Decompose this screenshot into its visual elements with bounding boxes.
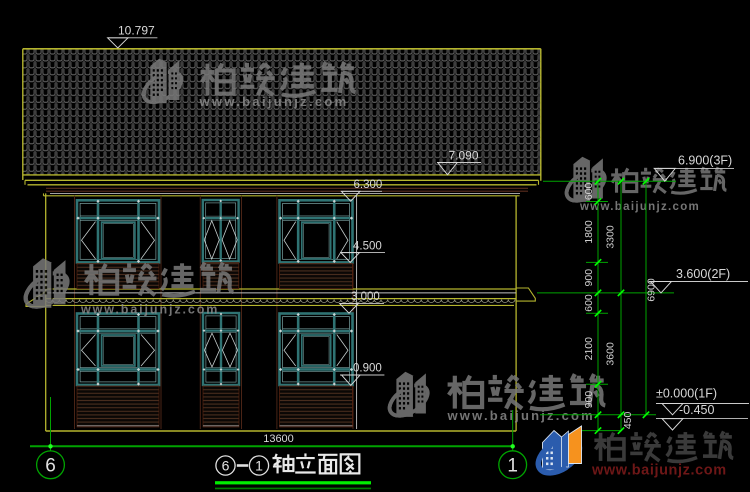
svg-text:3.000: 3.000 <box>351 291 380 303</box>
svg-text:www.baijunjz.com: www.baijunjz.com <box>447 408 595 423</box>
svg-text:6: 6 <box>45 456 56 477</box>
svg-text:3600: 3600 <box>605 342 617 366</box>
svg-text:±0.000(1F): ±0.000(1F) <box>656 387 717 401</box>
svg-text:4.500: 4.500 <box>353 240 382 252</box>
svg-text:1: 1 <box>255 458 263 474</box>
svg-text:6: 6 <box>222 458 230 474</box>
svg-text:-0.450: -0.450 <box>679 403 714 417</box>
svg-text:600: 600 <box>583 182 595 200</box>
svg-text:13600: 13600 <box>263 433 294 445</box>
svg-text:www.baijunjz.com: www.baijunjz.com <box>80 303 219 317</box>
svg-text:7.090: 7.090 <box>449 149 479 163</box>
svg-text:6.900(3F): 6.900(3F) <box>678 154 732 168</box>
svg-text:2100: 2100 <box>583 337 595 361</box>
svg-text:900: 900 <box>583 269 595 287</box>
svg-text:0.900: 0.900 <box>353 363 382 375</box>
svg-text:3.600(2F): 3.600(2F) <box>676 267 730 281</box>
svg-text:1: 1 <box>507 455 518 476</box>
svg-text:1800: 1800 <box>583 220 595 244</box>
svg-text:450: 450 <box>622 411 634 429</box>
svg-text:3300: 3300 <box>605 225 617 249</box>
svg-text:www.baijunjz.com: www.baijunjz.com <box>591 463 727 479</box>
svg-text:900: 900 <box>583 391 595 409</box>
svg-text:www.baijunjz.com: www.baijunjz.com <box>199 94 349 109</box>
svg-text:6.300: 6.300 <box>354 179 383 191</box>
svg-text:600: 600 <box>583 294 595 312</box>
svg-text:10.797: 10.797 <box>118 24 155 38</box>
